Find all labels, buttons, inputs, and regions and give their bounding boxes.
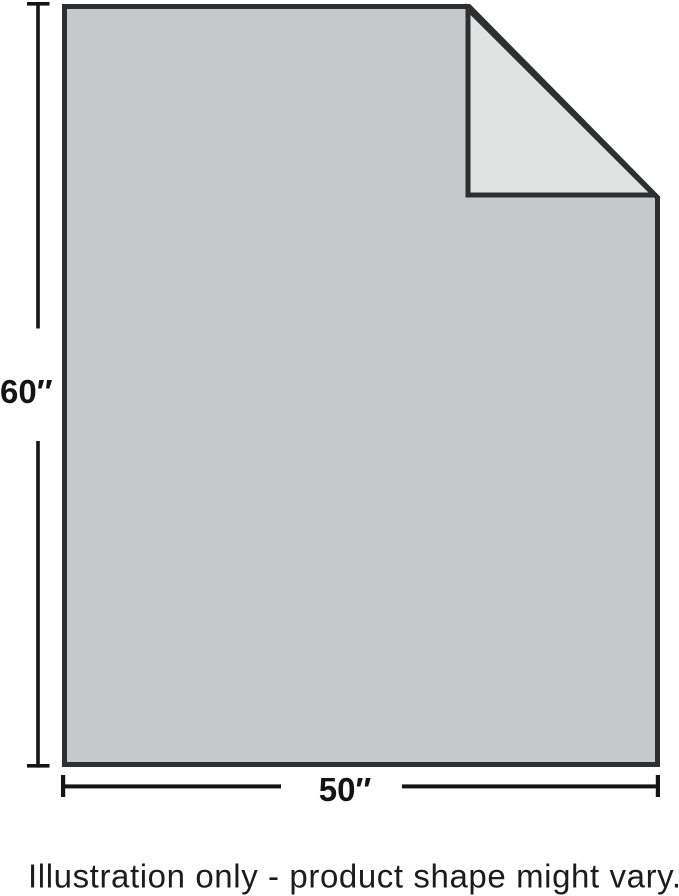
- svg-text:Illustration only - product sh: Illustration only - product shape might …: [28, 858, 679, 895]
- svg-text:50″: 50″: [319, 771, 372, 808]
- svg-text:60″: 60″: [0, 373, 53, 410]
